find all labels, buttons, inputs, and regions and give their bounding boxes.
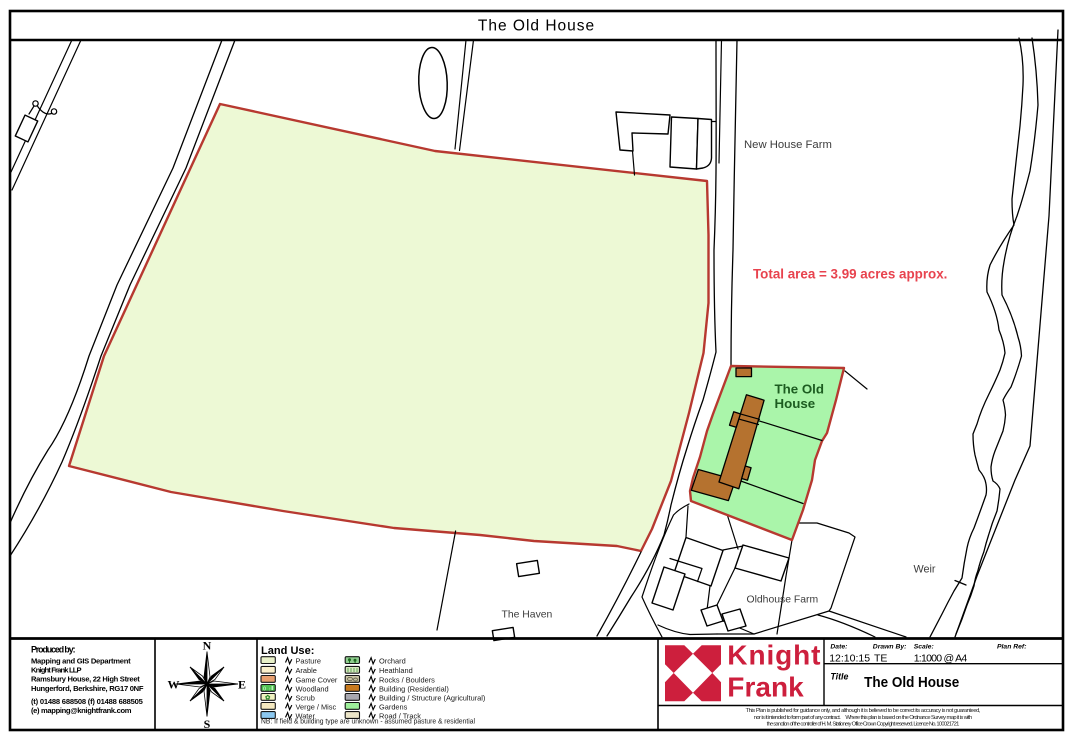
svg-text:New House Farm: New House Farm bbox=[744, 139, 832, 151]
svg-text:Mapping and GIS Department: Mapping and GIS Department bbox=[31, 656, 131, 665]
svg-text:E: E bbox=[238, 678, 246, 692]
svg-text:NB: If field & building type a: NB: If field & building type are unknown… bbox=[261, 719, 475, 726]
svg-text:Ramsbury House, 22 High Street: Ramsbury House, 22 High Street bbox=[31, 675, 140, 684]
svg-text:12:10:15: 12:10:15 bbox=[829, 652, 870, 664]
svg-text:Oldhouse Farm: Oldhouse Farm bbox=[747, 595, 819, 606]
svg-text:The Haven: The Haven bbox=[502, 610, 553, 621]
svg-text:Orchard: Orchard bbox=[379, 657, 406, 666]
svg-text:0: 0 bbox=[263, 686, 266, 692]
svg-text:Plan Ref:: Plan Ref: bbox=[997, 644, 1026, 651]
svg-text:This Plan is published for gui: This Plan is published for guidance only… bbox=[746, 708, 981, 714]
svg-text:Scale:: Scale: bbox=[914, 644, 934, 651]
svg-text:Total area = 3.99 acres approx: Total area = 3.99 acres approx. bbox=[753, 267, 947, 282]
svg-text:Land Use:: Land Use: bbox=[261, 645, 314, 657]
svg-text:Building / Structure (Agricult: Building / Structure (Agricultural) bbox=[379, 693, 485, 702]
svg-text:Gardens: Gardens bbox=[379, 702, 408, 711]
svg-text:House: House bbox=[775, 396, 816, 411]
svg-text:Verge / Misc: Verge / Misc bbox=[296, 702, 337, 711]
svg-text:Rocks / Boulders: Rocks / Boulders bbox=[379, 675, 435, 684]
svg-text:(e) mapping@knightfrank.com: (e) mapping@knightfrank.com bbox=[31, 706, 132, 715]
svg-text:The Old House: The Old House bbox=[478, 18, 595, 35]
svg-text:1:1000 @ A4: 1:1000 @ A4 bbox=[914, 652, 968, 664]
svg-text:Hungerford, Berkshire, RG17 0N: Hungerford, Berkshire, RG17 0NF bbox=[31, 684, 144, 693]
svg-text:N: N bbox=[203, 639, 212, 653]
svg-text:Game Cover: Game Cover bbox=[296, 675, 338, 684]
svg-text:The Old House: The Old House bbox=[864, 675, 959, 691]
svg-text:Title: Title bbox=[830, 672, 848, 682]
svg-text:the sanction of the controller: the sanction of the controller of H. M. … bbox=[767, 722, 960, 728]
svg-text:Knight: Knight bbox=[727, 640, 820, 671]
svg-text:Building (Residential): Building (Residential) bbox=[379, 684, 449, 693]
svg-text:↑: ↑ bbox=[269, 686, 272, 692]
svg-text:Heathland: Heathland bbox=[379, 666, 413, 675]
svg-text:Frank: Frank bbox=[727, 672, 804, 703]
svg-text:✿: ✿ bbox=[265, 694, 271, 702]
svg-text:The Old: The Old bbox=[775, 382, 825, 397]
svg-text:Produced by:: Produced by: bbox=[31, 645, 76, 655]
svg-text:(t) 01488 688508 (f) 01488 688: (t) 01488 688508 (f) 01488 688505 bbox=[31, 697, 144, 706]
svg-text:Scrub: Scrub bbox=[296, 693, 315, 702]
svg-text:Knight Frank LLP: Knight Frank LLP bbox=[31, 666, 82, 675]
svg-text:W: W bbox=[168, 678, 180, 692]
svg-text:nor is it intended to form par: nor is it intended to form part of any c… bbox=[754, 715, 972, 721]
svg-text:Drawn By:: Drawn By: bbox=[873, 644, 907, 651]
svg-text:Pasture: Pasture bbox=[296, 657, 321, 666]
svg-text:TE: TE bbox=[874, 652, 887, 664]
svg-text:Woodland: Woodland bbox=[296, 684, 329, 693]
svg-text:Arable: Arable bbox=[296, 666, 317, 675]
svg-text:Date:: Date: bbox=[830, 644, 847, 651]
svg-text:Weir: Weir bbox=[914, 564, 936, 576]
